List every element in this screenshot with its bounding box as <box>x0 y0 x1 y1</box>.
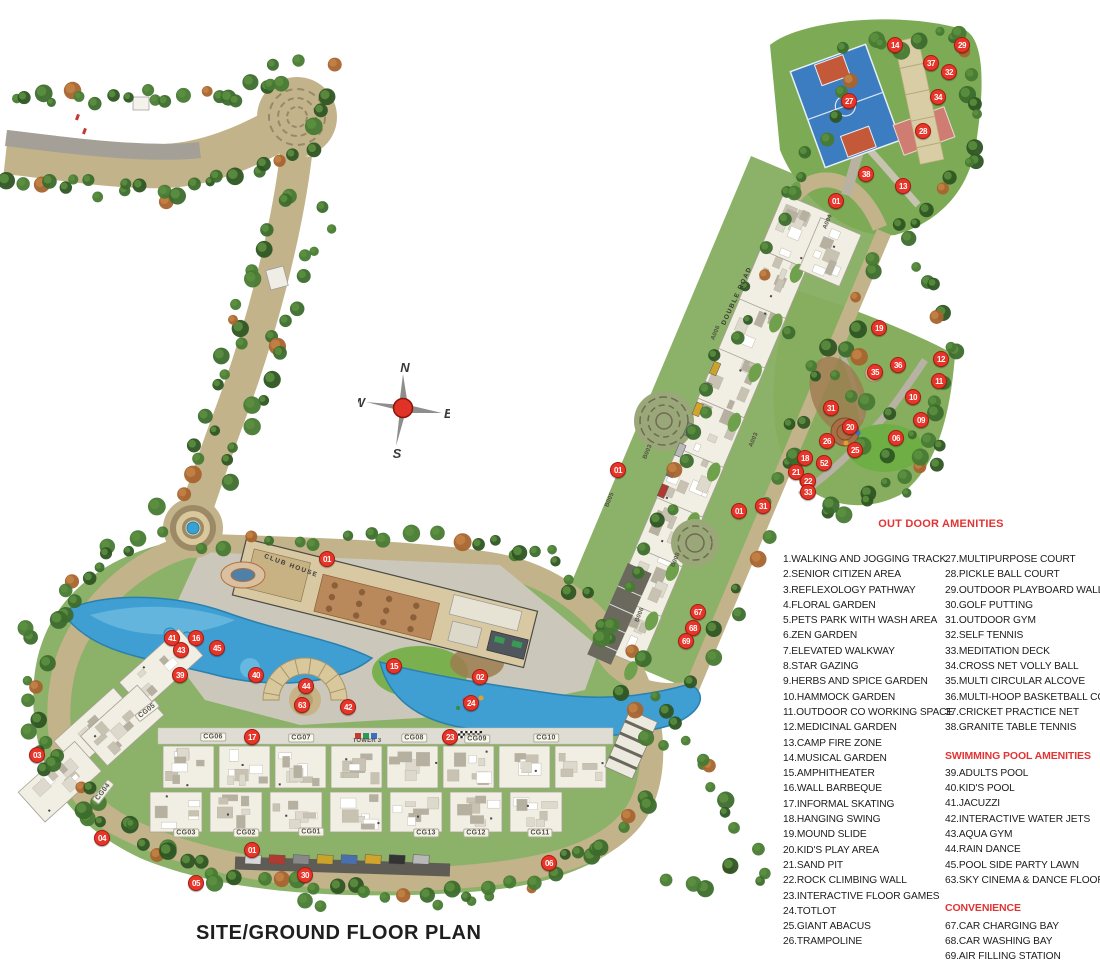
legend-item: 38.GRANITE TABLE TENNIS <box>945 720 1099 735</box>
legend-item: 41.JACUZZI <box>945 796 1099 811</box>
legend-item: 14.MUSICAL GARDEN <box>783 751 945 766</box>
legend-item: 69.AIR FILLING STATION <box>945 949 1099 963</box>
legend-item: 43.AQUA GYM <box>945 827 1099 842</box>
legend-item: 37.CRICKET PRACTICE NET <box>945 705 1099 720</box>
legend-item: 4.FLORAL GARDEN <box>783 598 945 613</box>
legend-item: 7.ELEVATED WALKWAY <box>783 644 945 659</box>
legend-item: 31.OUTDOOR GYM <box>945 613 1099 628</box>
legend-item: 20.KID'S PLAY AREA <box>783 843 945 858</box>
play-dot <box>856 431 861 436</box>
legend-item: 30.GOLF PUTTING <box>945 598 1099 613</box>
legend-item: 24.TOTLOT <box>783 904 945 919</box>
legend-item: 6.ZEN GARDEN <box>783 628 945 643</box>
road-arrow <box>82 128 87 135</box>
legend-item: 67.CAR CHARGING BAY <box>945 919 1099 934</box>
fountain-water <box>187 522 199 534</box>
legend-item: 34.CROSS NET VOLLY BALL <box>945 659 1099 674</box>
legend-item: 21.SAND PIT <box>783 858 945 873</box>
gatehouse <box>133 97 149 110</box>
legend-item: 29.OUTDOOR PLAYBOARD WALL <box>945 583 1099 598</box>
legend-item: 25.GIANT ABACUS <box>783 919 945 934</box>
legend-item: 12.MEDICINAL GARDEN <box>783 720 945 735</box>
legend-item: 39.ADULTS POOL <box>945 766 1099 781</box>
legend-item: 17.INFORMAL SKATING <box>783 797 945 812</box>
legend-item: 18.HANGING SWING <box>783 812 945 827</box>
reflexology-oval <box>221 562 265 588</box>
legend-item: 32.SELF TENNIS <box>945 628 1099 643</box>
circular-alcove <box>865 364 883 382</box>
compass-rose: N W E S <box>358 362 450 460</box>
legend-item: 44.RAIN DANCE <box>945 842 1099 857</box>
legend-item: 36.MULTI-HOOP BASKETBALL COURT <box>945 690 1099 705</box>
legend-column-1: 1.WALKING AND JOGGING TRACK2.SENIOR CITI… <box>783 552 945 963</box>
legend-item: 1.WALKING AND JOGGING TRACK <box>783 552 945 567</box>
legend-item: 42.INTERACTIVE WATER JETS <box>945 812 1099 827</box>
legend-item: 13.CAMP FIRE ZONE <box>783 736 945 751</box>
site-plan-canvas: CG05CG06CG07CG08CG09CG10CG04CG03CG02CG01… <box>0 0 1100 963</box>
legend-item: 9.HERBS AND SPICE GARDEN <box>783 674 945 689</box>
legend-item: 26.TRAMPOLINE <box>783 934 945 949</box>
legend-item: 2.SENIOR CITIZEN AREA <box>783 567 945 582</box>
convenience-header: CONVENIENCE <box>945 901 1099 916</box>
legend-item: 68.CAR WASHING BAY <box>945 934 1099 949</box>
compass-e: E <box>444 406 450 421</box>
legend-item: 23.INTERACTIVE FLOOR GAMES <box>783 889 945 904</box>
road-arrow <box>75 114 80 121</box>
legend-item: 10.HAMMOCK GARDEN <box>783 690 945 705</box>
compass-s: S <box>393 446 402 460</box>
legend-item: 40.KID'S POOL <box>945 781 1099 796</box>
legend-item: 5.PETS PARK WITH WASH AREA <box>783 613 945 628</box>
amenities-legend: OUT DOOR AMENITIES 1.WALKING AND JOGGING… <box>783 518 1099 963</box>
gym-equipment <box>826 404 829 407</box>
legend-item: 16.WALL BARBEQUE <box>783 781 945 796</box>
legend-item: 63.SKY CINEMA & DANCE FLOOR <box>945 873 1099 888</box>
page-title: SITE/GROUND FLOOR PLAN <box>196 922 481 945</box>
cluster-corridor <box>158 728 613 744</box>
play-dot <box>850 423 855 428</box>
legend-item: 45.POOL SIDE PARTY LAWN <box>945 858 1099 873</box>
fountain-plaza <box>163 498 223 558</box>
play-dot <box>844 441 849 446</box>
compass-w: W <box>358 395 367 410</box>
interactive-floor-checker <box>458 731 482 738</box>
legend-item: 22.ROCK CLIMBING WALL <box>783 873 945 888</box>
legend-item: 11.OUTDOOR CO WORKING SPACE <box>783 705 945 720</box>
gym-equipment <box>833 410 836 413</box>
compass-center <box>394 399 413 418</box>
legend-column-2: 27.MULTIPURPOSE COURT28.PICKLE BALL COUR… <box>945 552 1099 963</box>
swimming-pool-amenities-header: SWIMMING POOL AMENITIES <box>945 749 1099 764</box>
legend-item: 28.PICKLE BALL COURT <box>945 567 1099 582</box>
legend-item: 3.REFLEXOLOGY PATHWAY <box>783 583 945 598</box>
legend-item: 27.MULTIPURPOSE COURT <box>945 552 1099 567</box>
legend-item: 19.MOUND SLIDE <box>783 827 945 842</box>
legend-item: 8.STAR GAZING <box>783 659 945 674</box>
legend-item: 35.MULTI CIRCULAR ALCOVE <box>945 674 1099 689</box>
legend-item: 33.MEDITATION DECK <box>945 644 1099 659</box>
legend-item: 15.AMPHITHEATER <box>783 766 945 781</box>
compass-n: N <box>400 362 410 375</box>
outdoor-amenities-header: OUT DOOR AMENITIES <box>783 518 1099 530</box>
kids-pool <box>240 658 260 678</box>
